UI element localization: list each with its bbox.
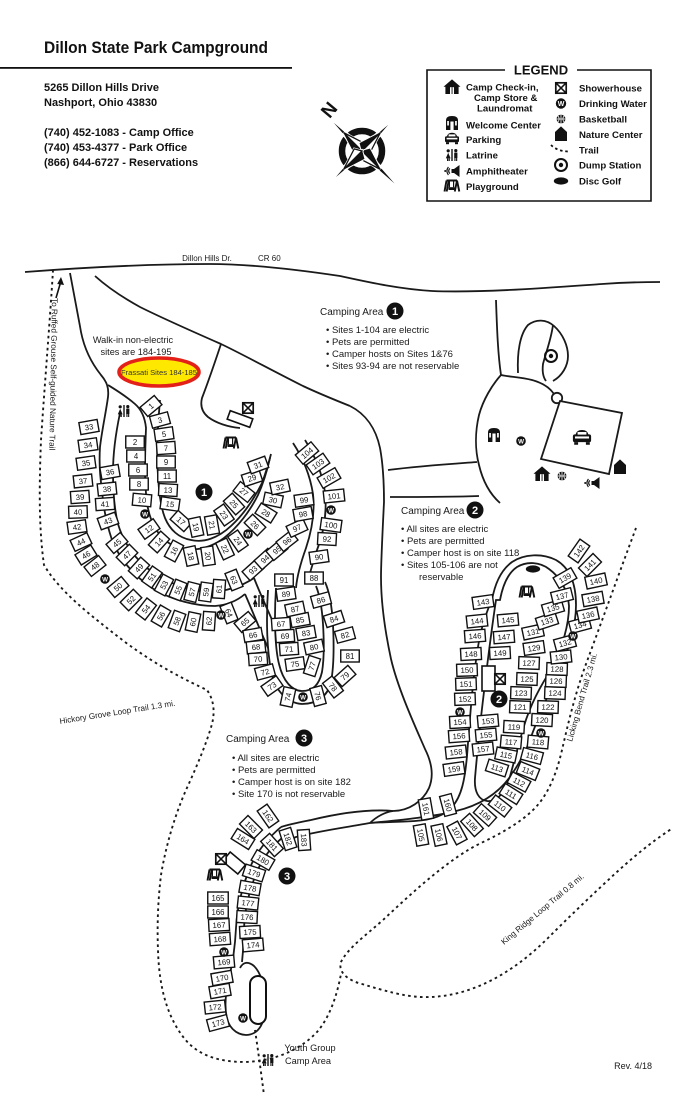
svg-text:Walk-in non-electric: Walk-in non-electric — [93, 335, 174, 345]
svg-text:W: W — [457, 709, 463, 716]
svg-text:(866) 644-6727 - Reservations: (866) 644-6727 - Reservations — [44, 157, 198, 169]
svg-text:124: 124 — [548, 689, 562, 698]
svg-text:88: 88 — [310, 574, 319, 583]
svg-text:W: W — [558, 101, 565, 108]
svg-text:92: 92 — [322, 535, 331, 544]
svg-text:100: 100 — [324, 520, 339, 531]
svg-text:156: 156 — [452, 731, 466, 741]
svg-text:117: 117 — [504, 737, 517, 747]
svg-text:King Ridge Loop Trail 0.8 mi.: King Ridge Loop Trail 0.8 mi. — [500, 872, 586, 946]
svg-text:Showerhouse: Showerhouse — [579, 84, 642, 95]
svg-text:Parking: Parking — [466, 135, 501, 146]
svg-text:W: W — [142, 511, 148, 518]
svg-text:Nature Center: Nature Center — [579, 130, 643, 141]
svg-text:Youth Group: Youth Group — [284, 1043, 335, 1053]
svg-text:83: 83 — [301, 628, 311, 638]
svg-text:W: W — [240, 1015, 246, 1022]
svg-text:9: 9 — [164, 458, 168, 467]
svg-text:Trail: Trail — [579, 146, 599, 157]
svg-text:123: 123 — [514, 689, 527, 698]
svg-text:• Sites 105-106 are not: • Sites 105-106 are not — [401, 560, 498, 571]
svg-text:118: 118 — [531, 737, 544, 747]
svg-text:32: 32 — [275, 482, 285, 493]
svg-text:• Camper host is on site 182: • Camper host is on site 182 — [232, 777, 351, 788]
svg-text:Camp Area: Camp Area — [285, 1056, 332, 1066]
svg-text:11: 11 — [163, 472, 171, 481]
svg-text:reservable: reservable — [419, 572, 463, 583]
svg-text:1: 1 — [201, 487, 207, 499]
svg-text:Latrine: Latrine — [466, 151, 498, 162]
svg-text:sites are 184-195: sites are 184-195 — [101, 347, 172, 357]
svg-text:LEGEND: LEGEND — [514, 63, 568, 78]
svg-text:99: 99 — [299, 495, 309, 505]
svg-text:W: W — [218, 612, 224, 619]
svg-text:Camp Check-in,: Camp Check-in, — [466, 83, 539, 94]
svg-text:69: 69 — [280, 632, 289, 642]
svg-text:41: 41 — [100, 500, 109, 510]
svg-text:146: 146 — [468, 631, 482, 641]
svg-text:• Pets are permitted: • Pets are permitted — [326, 337, 410, 348]
svg-text:• Camper hosts on Sites 1&76: • Camper hosts on Sites 1&76 — [326, 349, 453, 360]
svg-text:Frassati Sites 184-185: Frassati Sites 184-185 — [121, 368, 197, 377]
svg-text:42: 42 — [72, 522, 82, 532]
svg-text:126: 126 — [549, 677, 562, 686]
svg-text:Playground: Playground — [466, 182, 519, 193]
svg-text:155: 155 — [479, 730, 493, 740]
svg-text:158: 158 — [449, 747, 463, 757]
svg-text:Dillon State Park Campground: Dillon State Park Campground — [44, 38, 268, 57]
svg-text:• Pets are permitted: • Pets are permitted — [232, 765, 316, 776]
svg-text:(740) 453-4377 - Park Office: (740) 453-4377 - Park Office — [44, 142, 187, 154]
svg-text:168: 168 — [213, 934, 227, 944]
svg-text:159: 159 — [447, 764, 461, 775]
svg-text:147: 147 — [497, 632, 511, 642]
svg-text:19: 19 — [190, 522, 201, 532]
svg-text:W: W — [221, 949, 227, 956]
svg-text:• All sites are electric: • All sites are electric — [401, 524, 489, 535]
svg-text:68: 68 — [251, 642, 261, 652]
svg-text:128: 128 — [550, 665, 563, 674]
svg-text:Camp Store &: Camp Store & — [474, 93, 538, 104]
svg-text:127: 127 — [522, 659, 535, 668]
svg-text:169: 169 — [217, 957, 231, 967]
svg-text:183: 183 — [299, 833, 309, 847]
svg-text:3: 3 — [284, 871, 290, 883]
svg-text:36: 36 — [105, 467, 115, 477]
svg-text:61: 61 — [215, 584, 225, 593]
svg-text:2: 2 — [472, 505, 478, 517]
svg-text:33: 33 — [84, 422, 94, 432]
svg-text:Camping Area: Camping Area — [320, 307, 384, 318]
svg-text:CR 60: CR 60 — [258, 254, 281, 263]
svg-text:4: 4 — [134, 452, 139, 461]
svg-text:62: 62 — [205, 616, 215, 625]
svg-text:120: 120 — [535, 715, 549, 725]
svg-text:174: 174 — [246, 940, 260, 950]
svg-text:70: 70 — [253, 654, 263, 664]
svg-text:119: 119 — [508, 722, 521, 732]
svg-text:Basketball: Basketball — [579, 115, 627, 126]
svg-text:39: 39 — [75, 493, 84, 503]
svg-text:Camping Area: Camping Area — [401, 506, 465, 517]
svg-text:175: 175 — [243, 927, 257, 937]
svg-text:122: 122 — [541, 703, 554, 712]
svg-text:Laundromat: Laundromat — [477, 104, 533, 115]
svg-text:6: 6 — [136, 466, 140, 475]
svg-text:148: 148 — [464, 649, 477, 659]
svg-text:177: 177 — [241, 898, 255, 908]
svg-text:Nashport, Ohio 43830: Nashport, Ohio 43830 — [44, 97, 157, 109]
svg-text:• Sites 1-104 are electric: • Sites 1-104 are electric — [326, 325, 429, 336]
svg-text:Disc Golf: Disc Golf — [579, 177, 622, 188]
svg-text:Drinking Water: Drinking Water — [579, 99, 647, 110]
svg-text:W: W — [245, 531, 251, 538]
svg-text:W: W — [570, 633, 576, 640]
svg-text:121: 121 — [513, 703, 526, 712]
svg-text:7: 7 — [164, 444, 169, 453]
svg-text:2: 2 — [496, 694, 502, 706]
svg-text:130: 130 — [554, 652, 569, 662]
svg-text:81: 81 — [346, 652, 355, 661]
svg-text:67: 67 — [276, 620, 285, 630]
svg-text:3: 3 — [301, 733, 307, 745]
svg-text:151: 151 — [459, 680, 472, 689]
svg-text:153: 153 — [481, 716, 495, 726]
svg-text:37: 37 — [78, 476, 88, 486]
svg-text:W: W — [102, 576, 108, 583]
svg-text:172: 172 — [208, 1002, 222, 1012]
svg-text:150: 150 — [460, 666, 474, 675]
svg-text:167: 167 — [212, 920, 225, 930]
svg-text:• Site 170 is not reservable: • Site 170 is not reservable — [232, 789, 345, 800]
svg-text:18: 18 — [185, 551, 196, 561]
svg-text:Dillon Hills Dr.: Dillon Hills Dr. — [182, 254, 232, 263]
svg-text:Amphitheater: Amphitheater — [466, 167, 528, 178]
svg-text:• Pets are permitted: • Pets are permitted — [401, 536, 485, 547]
svg-text:• Camper host is on site 118: • Camper host is on site 118 — [401, 548, 519, 559]
svg-text:71: 71 — [284, 645, 293, 655]
svg-text:Dump Station: Dump Station — [579, 161, 641, 172]
svg-text:W: W — [300, 694, 306, 701]
svg-text:N: N — [317, 98, 342, 122]
svg-text:101: 101 — [327, 491, 341, 501]
svg-text:87: 87 — [290, 604, 300, 615]
svg-text:21: 21 — [207, 520, 217, 530]
svg-text:38: 38 — [102, 484, 112, 494]
svg-text:13: 13 — [163, 486, 172, 495]
svg-text:176: 176 — [240, 912, 253, 922]
svg-text:98: 98 — [298, 509, 308, 519]
svg-text:145: 145 — [501, 615, 515, 625]
svg-text:W: W — [328, 507, 334, 514]
svg-text:144: 144 — [470, 616, 485, 626]
svg-text:Rev. 4/18: Rev. 4/18 — [614, 1061, 652, 1071]
svg-text:66: 66 — [248, 630, 258, 640]
svg-text:8: 8 — [137, 480, 141, 489]
svg-text:To Ruffed Grouse Self-guided N: To Ruffed Grouse Self-guided Nature Trai… — [47, 298, 59, 451]
svg-text:(740) 452-1083 - Camp Office: (740) 452-1083 - Camp Office — [44, 127, 194, 139]
svg-text:Licking Bend Trail 2.3 mi.: Licking Bend Trail 2.3 mi. — [565, 652, 599, 742]
svg-text:• Sites 93-94 are not reservab: • Sites 93-94 are not reservable — [326, 361, 459, 372]
svg-text:Hickory Grove Loop Trail 1.3 m: Hickory Grove Loop Trail 1.3 mi. — [59, 699, 176, 726]
svg-text:154: 154 — [453, 717, 467, 727]
svg-text:1: 1 — [392, 306, 398, 318]
svg-text:Welcome Center: Welcome Center — [466, 121, 541, 132]
svg-text:129: 129 — [527, 643, 541, 654]
svg-text:89: 89 — [281, 589, 291, 599]
svg-text:152: 152 — [458, 695, 471, 704]
svg-text:W: W — [518, 438, 524, 445]
svg-text:157: 157 — [476, 744, 490, 754]
svg-text:10: 10 — [137, 495, 147, 505]
svg-text:• All sites are electric: • All sites are electric — [232, 753, 320, 764]
svg-text:149: 149 — [493, 648, 506, 658]
svg-text:143: 143 — [476, 597, 490, 608]
svg-text:W: W — [538, 730, 544, 737]
svg-text:125: 125 — [520, 675, 534, 684]
svg-text:40: 40 — [74, 508, 84, 517]
svg-text:5265 Dillon Hills Drive: 5265 Dillon Hills Drive — [44, 82, 159, 94]
svg-text:Camping Area: Camping Area — [226, 734, 290, 745]
svg-text:91: 91 — [280, 576, 289, 585]
svg-text:2: 2 — [133, 438, 137, 447]
svg-text:166: 166 — [211, 908, 224, 917]
svg-text:59: 59 — [201, 587, 211, 597]
svg-text:165: 165 — [211, 894, 225, 903]
